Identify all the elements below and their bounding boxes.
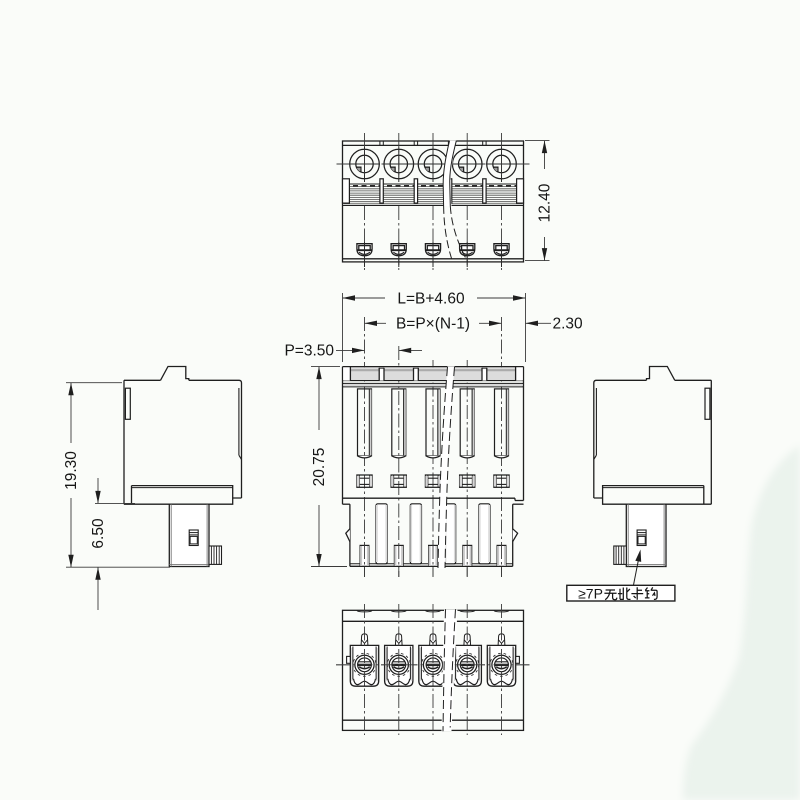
svg-text:P=3.50: P=3.50 (284, 343, 334, 360)
svg-text:19.30: 19.30 (63, 451, 80, 490)
svg-text:20.75: 20.75 (311, 448, 328, 487)
svg-text:12.40: 12.40 (537, 183, 554, 222)
svg-text:L=B+4.60: L=B+4.60 (397, 291, 465, 308)
svg-text:2.30: 2.30 (553, 316, 584, 333)
svg-text:B=P×(N-1): B=P×(N-1) (396, 316, 470, 333)
svg-text:≥7P: ≥7P (578, 586, 603, 602)
svg-text:6.50: 6.50 (90, 518, 107, 549)
